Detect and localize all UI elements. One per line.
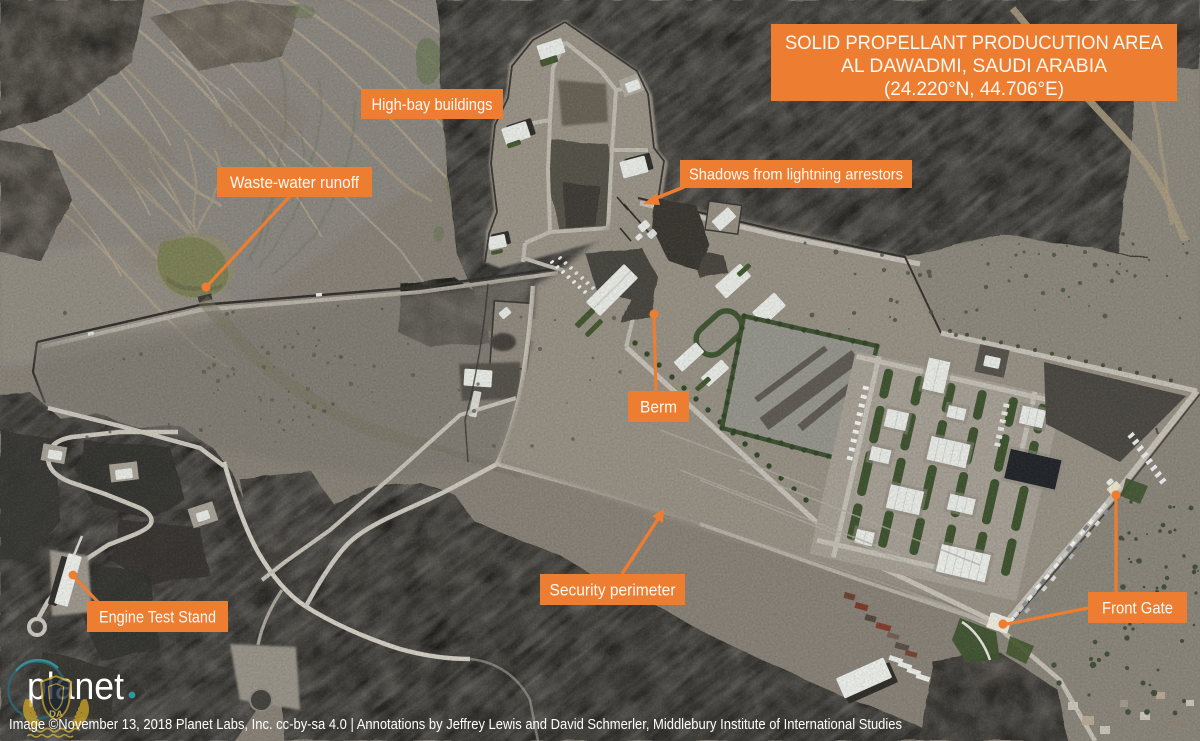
svg-text:AL DAWADMI, SAUDI ARABIA: AL DAWADMI, SAUDI ARABIA <box>841 55 1107 77</box>
svg-text:Engine Test Stand: Engine Test Stand <box>99 608 216 626</box>
svg-text:Front Gate: Front Gate <box>1102 599 1173 617</box>
svg-text:Berm: Berm <box>640 398 677 416</box>
svg-text:Waste-water runoff: Waste-water runoff <box>230 174 359 192</box>
svg-text:High-bay buildings: High-bay buildings <box>372 96 493 114</box>
svg-text:Image ©November 13, 2018 Plane: Image ©November 13, 2018 Planet Labs, In… <box>9 716 902 733</box>
svg-text:Security perimeter: Security perimeter <box>550 581 676 599</box>
svg-text:Shadows from lightning arresto: Shadows from lightning arrestors <box>689 167 903 184</box>
svg-text:SOLID PROPELLANT PRODUCUTION A: SOLID PROPELLANT PRODUCUTION AREA <box>785 32 1163 54</box>
svg-text:(24.220°N, 44.706°E): (24.220°N, 44.706°E) <box>884 78 1064 100</box>
